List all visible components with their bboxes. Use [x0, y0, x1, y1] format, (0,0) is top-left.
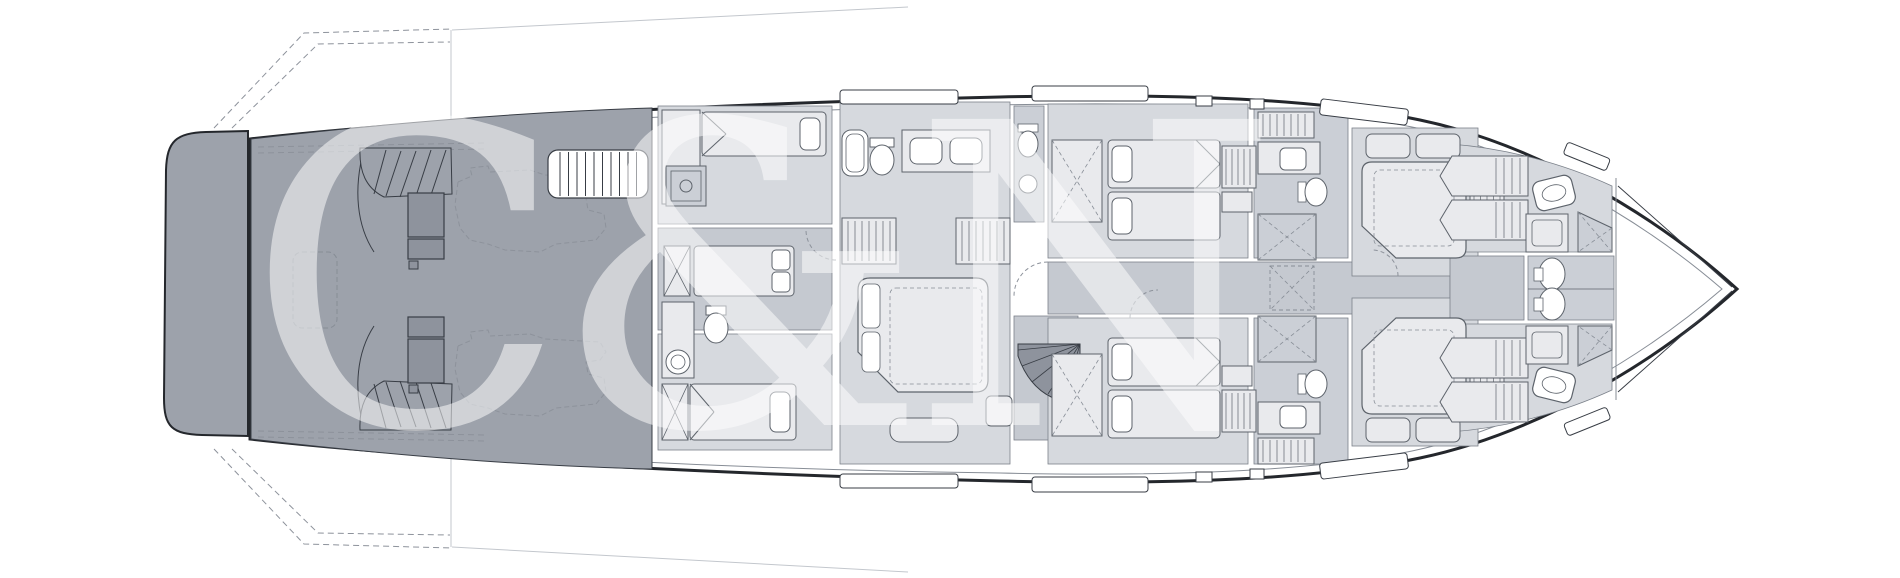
fwd-corridor-floor: [1450, 256, 1524, 320]
twin-bath-bottom-basin: [1280, 406, 1306, 428]
fwd-bunk-bottom-a: [1440, 338, 1528, 378]
twin-bath-top-toilet: [1305, 178, 1327, 206]
yacht-deck-plan: C&N: [0, 0, 1900, 578]
twin-bath-bottom-wardrobe: [1258, 438, 1314, 464]
fwd-toilet-bottom-tank: [1534, 298, 1543, 311]
fwd-toilet-top-tank: [1534, 268, 1543, 281]
door-guide-top: [452, 7, 908, 30]
bow-cleat-bottom: [1563, 407, 1611, 436]
fwd-bunk-bottom-b: [1440, 382, 1528, 422]
twin-bath-top-basin: [1280, 148, 1306, 170]
swim-platform: [164, 131, 248, 436]
brand-watermark: C&N: [246, 36, 1266, 525]
fwd-bunk-top-b: [1440, 200, 1528, 240]
twin-bath-bottom-toilet: [1305, 370, 1327, 398]
bow-cleat-top: [1563, 142, 1611, 171]
twin-bath-top-wardrobe: [1258, 112, 1314, 138]
vip-bottom-cushion-a: [1366, 418, 1410, 442]
fwd-bunk-top-a: [1440, 156, 1528, 196]
vip-top-cushion-b: [1416, 134, 1460, 158]
door-guide-bottom: [452, 547, 908, 572]
vip-top-cushion-a: [1366, 134, 1410, 158]
deck-plan-canvas: C&N: [0, 0, 1900, 578]
